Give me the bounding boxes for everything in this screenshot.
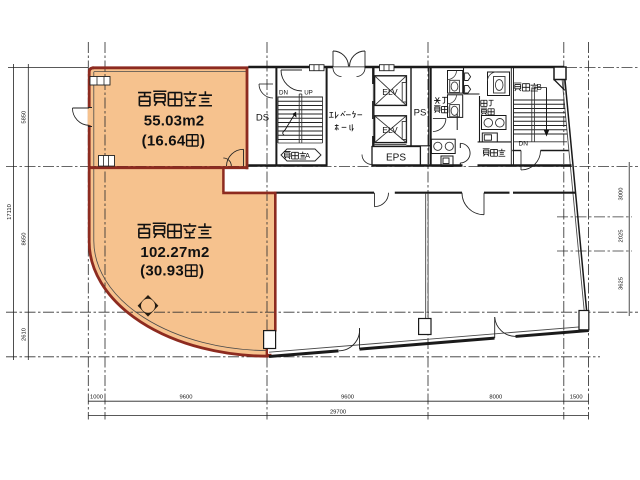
svg-text:8000: 8000 [489,394,502,400]
svg-text:PS: PS [414,108,427,119]
svg-text:DN: DN [519,140,529,147]
svg-text:3625: 3625 [619,277,625,290]
svg-text:17110: 17110 [7,204,13,220]
svg-text:UP: UP [304,90,313,97]
svg-text:B: B [537,83,542,92]
svg-text:(30.93: (30.93 [140,263,184,280]
svg-text:2025: 2025 [619,230,625,243]
svg-text:1500: 1500 [570,394,583,400]
svg-text:3000: 3000 [619,188,625,201]
svg-text:): ) [200,132,205,149]
svg-text:(16.64: (16.64 [142,132,186,149]
svg-text:DN: DN [279,90,288,97]
svg-text:55.03m2: 55.03m2 [144,112,205,129]
svg-text:8650: 8650 [22,233,28,246]
svg-text:ELV: ELV [382,125,398,135]
svg-text:1000: 1000 [90,394,103,400]
svg-text:9600: 9600 [180,394,193,400]
svg-text:5850: 5850 [22,111,28,124]
svg-text:9600: 9600 [341,394,354,400]
svg-text:29700: 29700 [330,410,346,416]
svg-text:EPS: EPS [386,153,406,164]
svg-text:ELV: ELV [382,87,398,97]
svg-text:2610: 2610 [22,328,28,341]
svg-text:DS: DS [256,113,269,124]
svg-text:102.27m2: 102.27m2 [140,244,209,261]
svg-text:): ) [199,263,204,280]
svg-text:A: A [305,151,310,160]
